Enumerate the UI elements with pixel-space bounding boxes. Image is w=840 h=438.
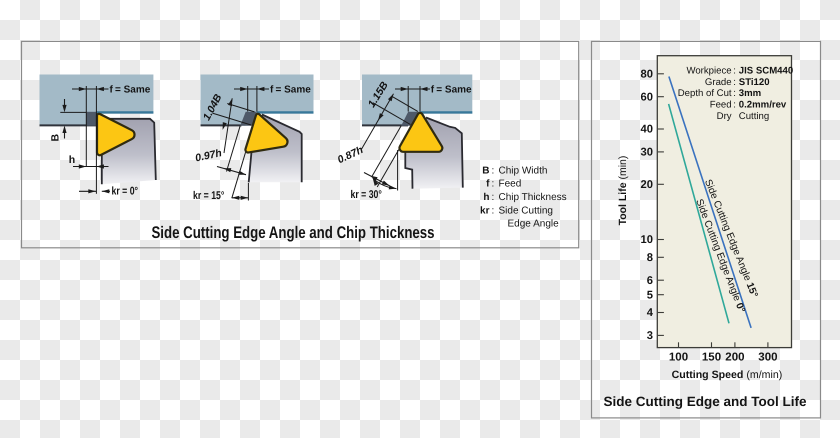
svg-text:kr = 30°: kr = 30° bbox=[351, 189, 382, 201]
svg-text:JIS SCM440: JIS SCM440 bbox=[739, 66, 793, 77]
svg-text:Workpiece: Workpiece bbox=[686, 66, 731, 77]
svg-text::: : bbox=[733, 77, 736, 88]
svg-text:= Same: = Same bbox=[115, 85, 151, 96]
svg-text:B: B bbox=[482, 166, 489, 177]
svg-text::: : bbox=[492, 192, 495, 203]
svg-text:8: 8 bbox=[647, 252, 653, 264]
svg-text:Chip Width: Chip Width bbox=[499, 166, 548, 177]
svg-text:10: 10 bbox=[641, 234, 653, 246]
svg-text::: : bbox=[492, 166, 495, 177]
svg-text:B: B bbox=[50, 134, 62, 142]
svg-text:Side Cutting Edge and Tool Lif: Side Cutting Edge and Tool Life bbox=[604, 394, 807, 409]
svg-text:Chip Thickness: Chip Thickness bbox=[499, 192, 567, 203]
svg-text::: : bbox=[492, 179, 495, 190]
svg-text:6: 6 bbox=[647, 275, 653, 287]
svg-text::: : bbox=[733, 66, 736, 77]
svg-text:Depth of Cut: Depth of Cut bbox=[678, 88, 732, 99]
svg-text:f: f bbox=[486, 179, 490, 190]
svg-text:kr = 15°: kr = 15° bbox=[193, 190, 224, 202]
svg-text:3: 3 bbox=[647, 330, 653, 342]
svg-text:kr = 0°: kr = 0° bbox=[112, 186, 139, 198]
svg-text:Side Cutting Edge Angle and Ch: Side Cutting Edge Angle and Chip Thickne… bbox=[151, 223, 434, 242]
svg-text:Edge Angle: Edge Angle bbox=[508, 219, 560, 230]
svg-text:40: 40 bbox=[641, 124, 653, 136]
svg-text:h: h bbox=[69, 154, 75, 166]
svg-text:20: 20 bbox=[641, 179, 653, 191]
svg-text:30: 30 bbox=[641, 147, 653, 159]
svg-text::: : bbox=[733, 100, 736, 111]
svg-text:STi120: STi120 bbox=[739, 77, 770, 88]
svg-text:300: 300 bbox=[758, 352, 777, 364]
svg-text:Feed: Feed bbox=[499, 179, 522, 190]
svg-text::: : bbox=[492, 206, 495, 217]
svg-text:Cutting: Cutting bbox=[739, 111, 769, 122]
svg-text:150: 150 bbox=[702, 352, 721, 364]
svg-text:Side Cutting: Side Cutting bbox=[499, 206, 553, 217]
svg-text:Dry: Dry bbox=[717, 111, 732, 122]
svg-text::: : bbox=[733, 88, 736, 99]
svg-text:5: 5 bbox=[647, 289, 653, 301]
svg-text:Grade: Grade bbox=[705, 77, 732, 88]
svg-text:4: 4 bbox=[647, 307, 654, 319]
svg-text:Cutting Speed (m/min): Cutting Speed (m/min) bbox=[672, 369, 783, 381]
svg-text:0.97h: 0.97h bbox=[194, 147, 223, 164]
svg-text:0.87h: 0.87h bbox=[336, 144, 365, 166]
svg-text:= Same: = Same bbox=[436, 85, 472, 96]
svg-text:kr: kr bbox=[480, 206, 490, 217]
svg-text:80: 80 bbox=[641, 68, 653, 80]
svg-text:60: 60 bbox=[641, 91, 653, 103]
svg-text:100: 100 bbox=[669, 352, 688, 364]
svg-text:200: 200 bbox=[725, 352, 744, 364]
svg-text:Feed: Feed bbox=[710, 100, 732, 111]
svg-text:0.2mm/rev: 0.2mm/rev bbox=[739, 100, 787, 111]
svg-text:3mm: 3mm bbox=[739, 88, 761, 99]
svg-text:= Same: = Same bbox=[276, 85, 312, 96]
svg-text:h: h bbox=[483, 192, 489, 203]
svg-text:Tool Life (min): Tool Life (min) bbox=[617, 156, 629, 226]
